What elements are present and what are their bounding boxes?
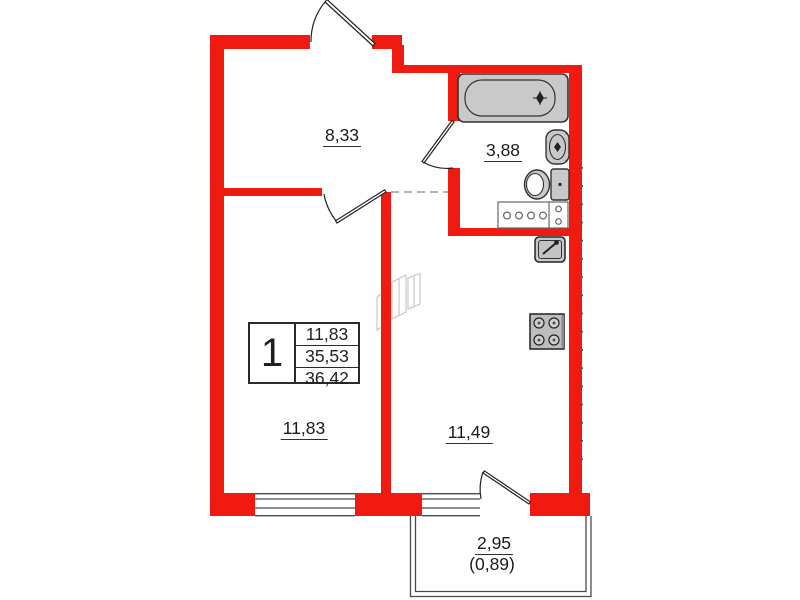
bathroom-sink-icon [546,130,569,164]
bedroom-door-icon [324,190,386,223]
balcony-door-leaf [483,471,530,504]
apartment-number: 1 [250,324,296,382]
kitchen-living-area-label: 11,49 [446,423,493,442]
toilet-icon [525,169,570,200]
entrance-door-swing-arc [311,2,325,42]
living-area-value: 11,83 [296,324,358,346]
balcony-door-icon [480,471,530,504]
bathroom-area-label: 3,88 [484,141,522,160]
floor-plan-drawing [0,0,800,600]
bedroom-area-label: 11,83 [281,419,328,438]
bedroom-door-leaf [336,190,386,223]
wall-bottom-left [210,493,255,516]
wall-exterior-right [569,65,582,495]
wall-bedroom-living-partition [381,192,391,493]
balcony-reduced-area-label: (0,89) [469,555,515,574]
wall-hallway-bedroom [224,188,322,196]
bathroom-door-swing-arc [423,162,453,168]
washer-cabinet-icon [498,202,568,228]
balcony-door-swing-arc [480,472,483,499]
entrance-door-leaf [325,0,375,46]
entrance-door-icon [311,0,375,46]
bathroom-door-leaf [422,120,454,163]
wall-top-upper-right [400,65,578,73]
bedroom-door-swing-arc [324,194,337,222]
stove-icon [530,314,564,349]
balcony-area-label: 2,95 [475,534,513,553]
apartment-area-value: 35,53 [296,346,358,368]
wall-bathroom-left-lower [448,168,460,236]
apartment-areas-column: 11,83 35,53 36,42 [296,324,358,382]
bathroom-door-icon [422,120,454,168]
apartment-info-table: 1 11,83 35,53 36,42 [248,322,360,384]
wall-top-hallway [210,35,310,49]
wall-exterior-left [210,35,224,516]
total-area-value: 36,42 [296,368,358,389]
hallway-area-label: 8,33 [323,126,361,145]
living-room-window [422,494,480,516]
bedroom-window [255,494,355,516]
floor-plan-page: 8,33 3,88 11,83 11,49 2,95 (0,89) 1 11,8… [0,0,800,600]
wall-bottom-right [530,493,590,516]
kitchen-sink-icon [535,237,565,262]
wall-bathroom-bottom [448,228,570,236]
bathtub-icon [458,74,568,122]
wall-bottom-center-pier [355,493,422,516]
